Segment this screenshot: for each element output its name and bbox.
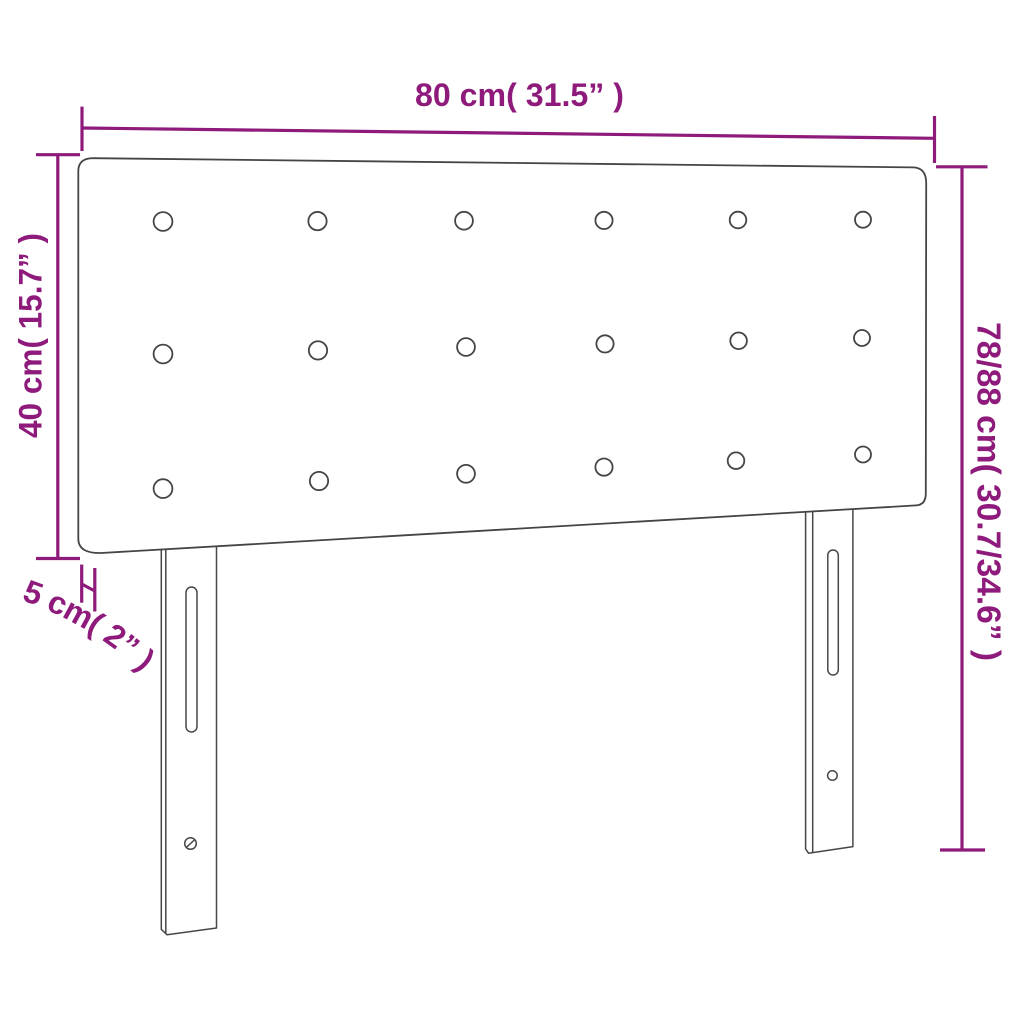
svg-text:40 cm( 15.7” ): 40 cm( 15.7” ) xyxy=(13,233,49,438)
svg-text:78/88 cm( 30.7/34.6” ): 78/88 cm( 30.7/34.6” ) xyxy=(971,322,1008,661)
svg-text:80 cm( 31.5” ): 80 cm( 31.5” ) xyxy=(415,77,624,113)
